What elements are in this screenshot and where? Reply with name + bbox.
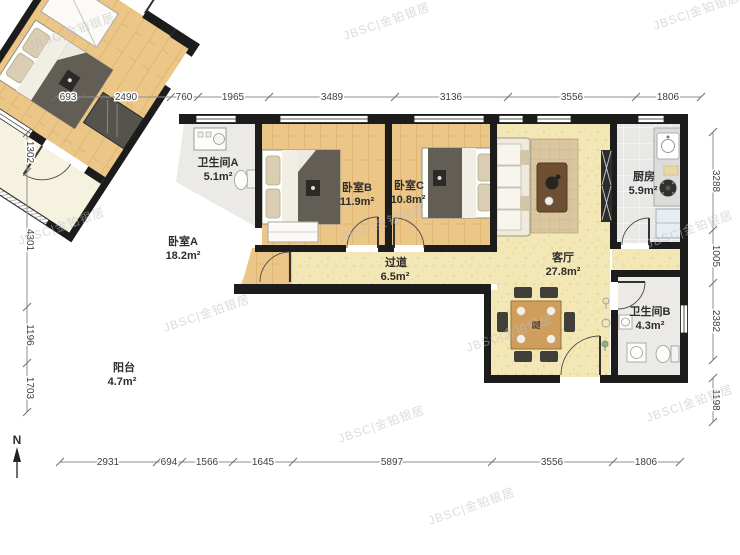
watermark-text: JBSC|金铂银居 xyxy=(341,0,432,43)
bedroomb-bedroomc-wall xyxy=(385,124,392,252)
dim-label: 1302 xyxy=(24,141,35,164)
window-kitchen-icon xyxy=(638,116,664,123)
window-bathroom-a-icon xyxy=(196,116,236,123)
room-area-bedroom-a: 18.2m² xyxy=(166,250,201,262)
bedrooms-south-wall-2 xyxy=(378,245,394,252)
north-arrow-icon xyxy=(13,447,21,462)
north-label: N xyxy=(13,433,22,447)
room-area-bedroom-b: 11.9m² xyxy=(340,196,375,208)
room-label-balcony: 阳台 xyxy=(113,360,135,374)
bathroomb-west-wall-2 xyxy=(611,310,618,383)
bedroomc-living-wall xyxy=(490,124,497,252)
bathroomb-west-wall-1 xyxy=(611,270,618,282)
toilet-b-tank-icon xyxy=(671,346,679,362)
sliding-door-icon xyxy=(601,150,612,222)
dim-label: 2490 xyxy=(115,92,138,103)
window-bedroom-b-icon xyxy=(280,116,368,123)
room-area-balcony: 4.7m² xyxy=(108,376,137,388)
washer-a-icon xyxy=(194,128,226,150)
bedrooms-south-wall-1 xyxy=(255,245,346,252)
watermark-text: JBSC|金铂银居 xyxy=(161,291,252,335)
room-label-hallway: 过道 xyxy=(385,255,407,269)
bedrooms-south-wall-3 xyxy=(424,245,497,252)
coffee-table-icon xyxy=(537,163,567,212)
dim-label: 693 xyxy=(60,92,77,103)
dim-label: 2931 xyxy=(97,457,120,468)
bottom-dimension-line: 2931 694 1566 1645 5897 3556 1806 xyxy=(56,457,684,468)
room-label-bathroom-b: 卫生间B xyxy=(630,304,671,318)
dim-label: 1005 xyxy=(710,245,721,268)
watermark-text: JBSC|金铂银居 xyxy=(336,402,427,446)
toilet-a-icon xyxy=(235,170,257,190)
floor-plan-canvas: 卫生间A 5.1m² 卧室B 11.9m² 卧室C 10.8m² 厨房 5.9m… xyxy=(0,0,740,555)
dim-label: 3288 xyxy=(710,170,721,193)
dim-label: 3556 xyxy=(541,457,564,468)
dim-label: 1566 xyxy=(196,457,219,468)
toilet-b-icon xyxy=(656,346,670,363)
kitchen-counter-icon xyxy=(654,128,682,206)
floor-plan-page: 卫生间A 5.1m² 卧室B 11.9m² 卧室C 10.8m² 厨房 5.9m… xyxy=(0,0,740,555)
dim-label: 760 xyxy=(176,92,193,103)
double-bed-c-icon xyxy=(422,148,492,218)
dim-label: 5897 xyxy=(381,457,404,468)
room-area-hallway: 6.5m² xyxy=(381,271,410,283)
window-bathroom-b-icon xyxy=(681,305,688,333)
dim-label: 3489 xyxy=(321,92,344,103)
dim-label: 1965 xyxy=(222,92,245,103)
room-label-bedroom-c: 卧室C xyxy=(394,178,424,192)
kitchen-south-wall-1 xyxy=(610,242,621,249)
bedroom-a-door-nook-floor xyxy=(242,248,292,284)
dim-label: 1806 xyxy=(657,92,680,103)
entry-nook-floor xyxy=(612,249,684,271)
bathroomb-north-wall xyxy=(611,270,688,277)
watermark-text: JBSC|金铂银居 xyxy=(651,0,740,33)
window-bedroom-c-icon xyxy=(414,116,484,123)
plant-icon xyxy=(602,341,608,347)
dim-label: 3136 xyxy=(440,92,463,103)
right-dimension-line: 3288 1005 2382 1198 xyxy=(709,128,721,426)
sofa-icon xyxy=(494,138,530,236)
dim-label: 694 xyxy=(161,457,178,468)
room-label-bedroom-a: 卧室A xyxy=(168,234,198,248)
dim-label: 1645 xyxy=(252,457,275,468)
watermark-text: JBSC|金铂银居 xyxy=(426,484,517,528)
window-living-1-icon xyxy=(499,116,523,123)
room-area-bathroom-a: 5.1m² xyxy=(204,171,233,183)
double-bed-b-icon xyxy=(262,150,340,224)
room-area-kitchen: 5.9m² xyxy=(629,185,658,197)
washer-b-icon xyxy=(627,343,646,362)
room-area-living: 27.8m² xyxy=(546,266,581,278)
dim-label: 1703 xyxy=(24,377,35,400)
room-area-bathroom-b: 4.3m² xyxy=(636,320,665,332)
north-compass: N xyxy=(13,433,22,478)
room-label-bathroom-a: 卫生间A xyxy=(198,155,239,169)
hallway-south-wall xyxy=(234,284,491,294)
bathrooma-bedroomb-wall xyxy=(255,124,262,228)
dim-label: 2382 xyxy=(710,310,721,333)
south-outer-wall-1 xyxy=(484,375,560,383)
bedroom-b-dresser-icon xyxy=(268,222,318,242)
window-living-2-icon xyxy=(537,116,571,123)
room-label-kitchen: 厨房 xyxy=(633,169,655,183)
room-label-bedroom-b: 卧室B xyxy=(342,180,372,194)
room-label-living: 客厅 xyxy=(551,250,574,264)
dim-label: 3556 xyxy=(561,92,584,103)
dim-label: 1806 xyxy=(635,457,658,468)
dim-label: 1196 xyxy=(24,324,35,346)
